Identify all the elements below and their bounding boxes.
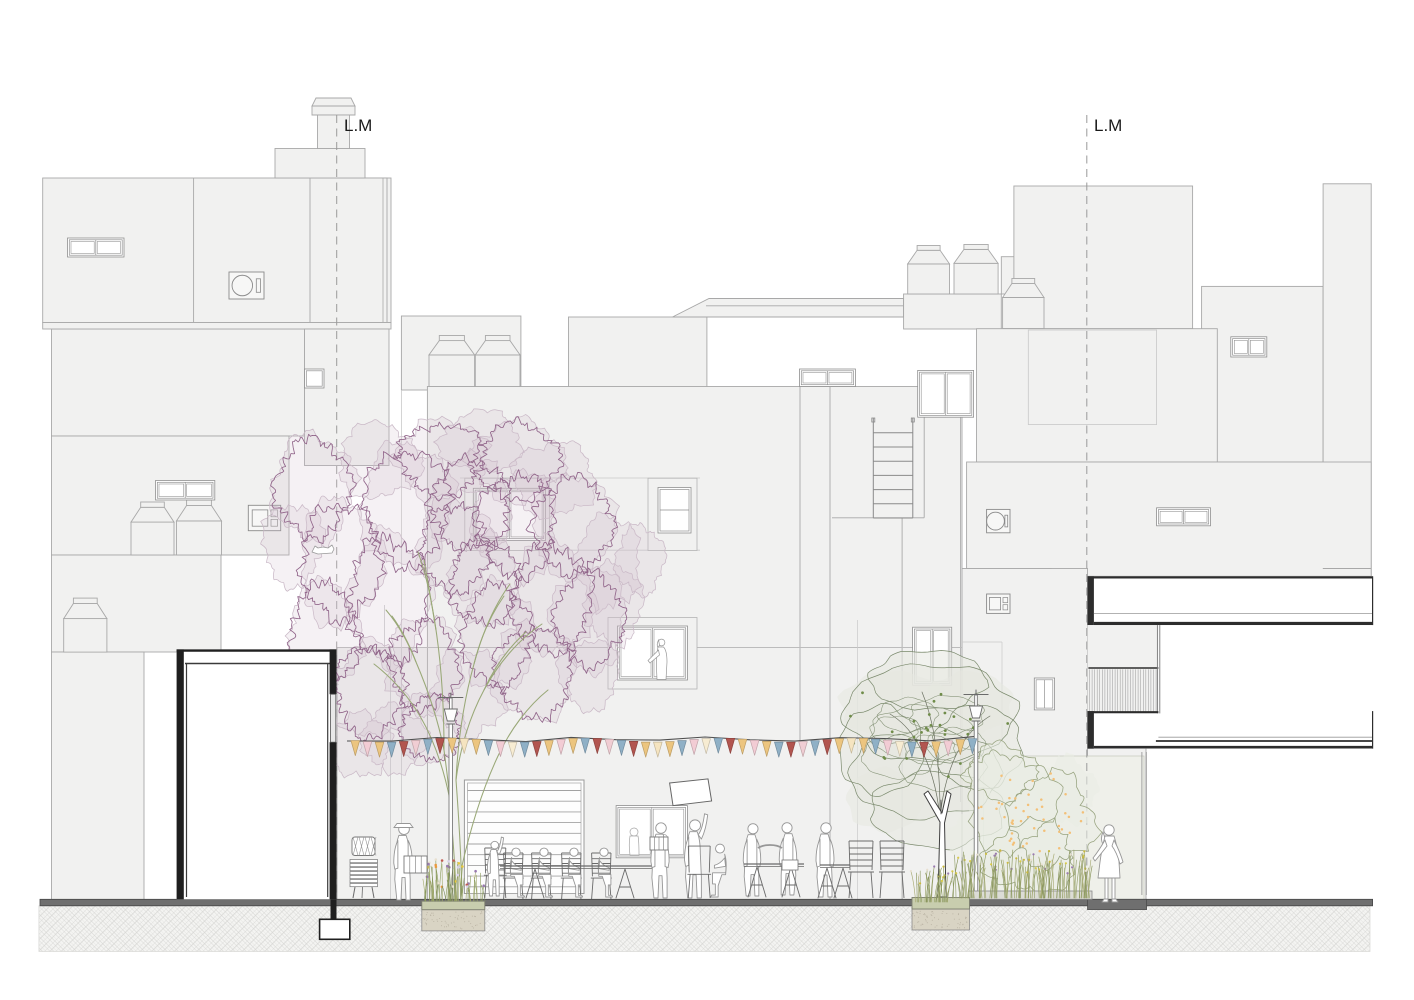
svg-text:L.M: L.M xyxy=(344,116,372,135)
svg-text:L.M: L.M xyxy=(1094,116,1122,135)
